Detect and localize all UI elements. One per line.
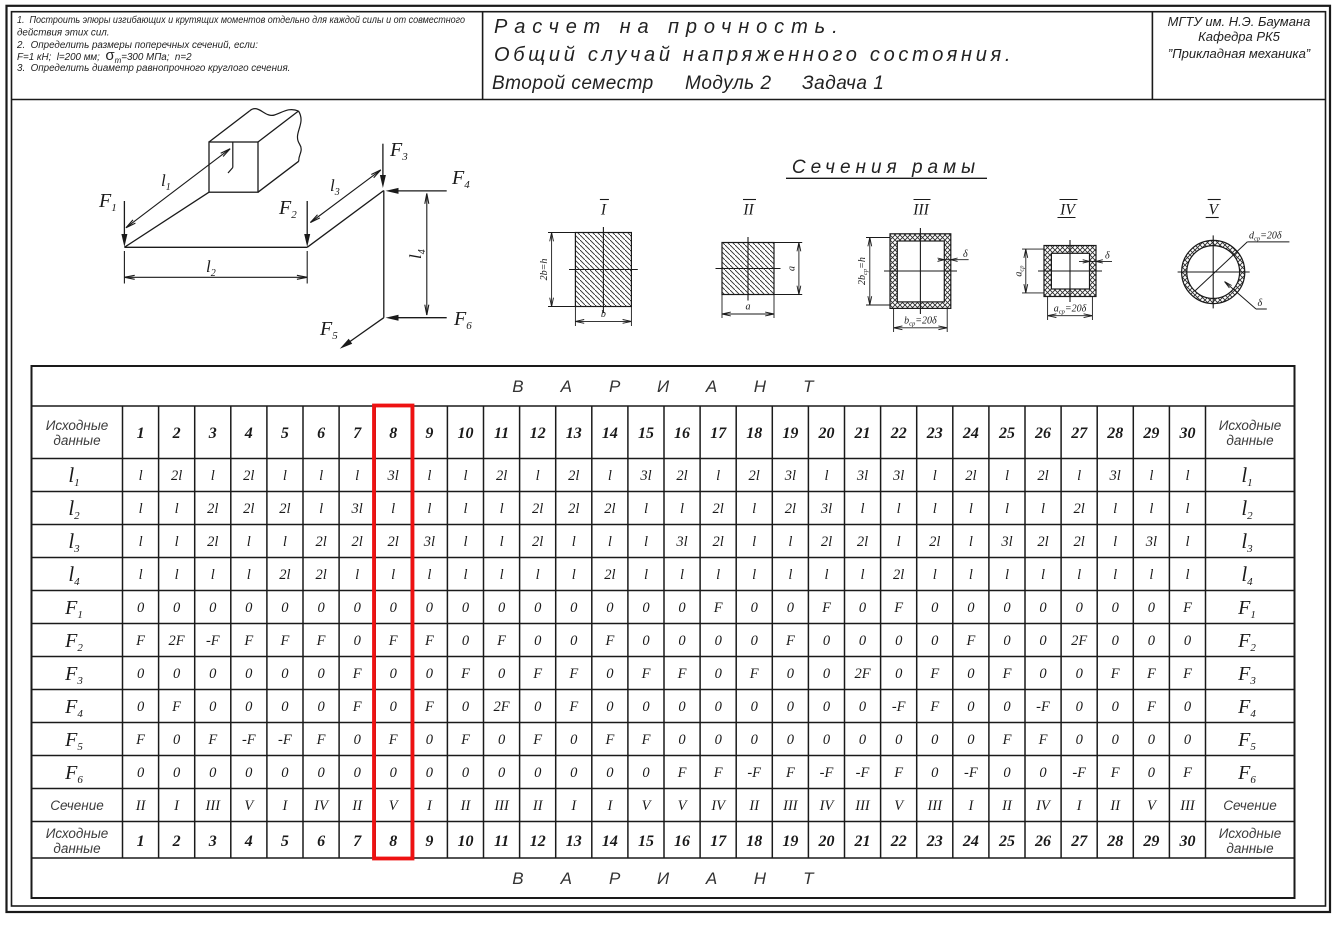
svg-text:20: 20	[818, 833, 835, 850]
svg-text:F: F	[677, 765, 687, 781]
svg-text:6: 6	[317, 425, 325, 442]
svg-text:Исходные: Исходные	[46, 418, 109, 433]
svg-text:В: В	[512, 377, 523, 396]
svg-text:Н: Н	[754, 869, 767, 888]
svg-text:0: 0	[895, 732, 903, 748]
svg-text:0: 0	[354, 765, 362, 781]
svg-text:l: l	[139, 468, 143, 484]
svg-text:Расчет на прочность.: Расчет на прочность.	[494, 16, 845, 38]
svg-text:21: 21	[854, 833, 871, 850]
svg-text:V: V	[642, 798, 653, 814]
svg-text:F3: F3	[1237, 663, 1256, 687]
svg-text:F: F	[135, 633, 145, 649]
svg-text:10: 10	[458, 425, 474, 442]
svg-text:F2: F2	[278, 197, 297, 221]
svg-text:l: l	[536, 567, 540, 583]
svg-text:l3: l3	[1241, 529, 1253, 555]
svg-text:0: 0	[787, 600, 795, 616]
svg-text:δ: δ	[1258, 298, 1263, 309]
svg-text:l: l	[1005, 567, 1009, 583]
svg-text:17: 17	[710, 425, 727, 442]
svg-text:0: 0	[751, 732, 759, 748]
svg-text:F: F	[1002, 732, 1012, 748]
svg-text:0: 0	[281, 600, 289, 616]
svg-text:l: l	[355, 468, 359, 484]
svg-text:l: l	[1077, 468, 1081, 484]
svg-text:0: 0	[642, 699, 650, 715]
svg-text:l: l	[283, 534, 287, 550]
svg-text:F3: F3	[64, 663, 83, 687]
svg-text:-F: -F	[856, 765, 870, 781]
svg-text:данные: данные	[1226, 433, 1273, 448]
svg-text:δ: δ	[1105, 251, 1110, 262]
svg-text:l3: l3	[330, 176, 340, 198]
svg-text:F4: F4	[64, 696, 83, 720]
svg-text:0: 0	[426, 765, 434, 781]
svg-text:0: 0	[823, 699, 831, 715]
svg-text:I: I	[967, 798, 974, 814]
svg-text:l: l	[1041, 567, 1045, 583]
svg-text:27: 27	[1070, 833, 1088, 850]
svg-text:1: 1	[137, 425, 145, 442]
svg-text:F: F	[532, 732, 542, 748]
svg-text:0: 0	[1076, 600, 1084, 616]
svg-text:2. Определить размеры попереч: 2. Определить размеры поперечных сечений…	[16, 40, 258, 51]
svg-text:bср=20δ: bср=20δ	[904, 316, 937, 328]
svg-text:-F: -F	[278, 732, 292, 748]
svg-text:0: 0	[498, 765, 506, 781]
svg-text:b: b	[601, 309, 606, 320]
svg-text:29: 29	[1142, 425, 1159, 442]
svg-text:Сечения рамы: Сечения рамы	[792, 157, 980, 178]
svg-text:0: 0	[1112, 600, 1120, 616]
svg-text:24: 24	[962, 425, 979, 442]
svg-text:3: 3	[208, 425, 217, 442]
svg-text:2l: 2l	[388, 534, 399, 550]
svg-text:Общий случай напряженного сост: Общий случай напряженного состояния.	[494, 44, 1014, 66]
svg-text:0: 0	[426, 600, 434, 616]
svg-text:II: II	[1001, 798, 1013, 814]
svg-text:Исходные: Исходные	[1219, 418, 1282, 433]
svg-text:l: l	[1005, 468, 1009, 484]
svg-text:0: 0	[931, 765, 939, 781]
svg-text:А: А	[560, 377, 572, 396]
svg-text:F: F	[604, 633, 614, 649]
svg-text:l: l	[1113, 534, 1117, 550]
svg-text:F: F	[171, 699, 181, 715]
svg-text:F: F	[1110, 765, 1120, 781]
svg-text:0: 0	[534, 633, 542, 649]
svg-text:0: 0	[137, 699, 145, 715]
svg-text:2l: 2l	[279, 501, 290, 517]
svg-text:IV: IV	[313, 798, 330, 814]
svg-text:2l: 2l	[532, 534, 543, 550]
svg-text:l: l	[644, 534, 648, 550]
svg-text:0: 0	[1184, 633, 1192, 649]
svg-text:12: 12	[530, 425, 546, 442]
svg-text:-F: -F	[1072, 765, 1086, 781]
svg-text:0: 0	[354, 633, 362, 649]
svg-text:l: l	[1041, 501, 1045, 517]
svg-text:4: 4	[244, 425, 253, 442]
svg-text:F: F	[965, 633, 975, 649]
svg-text:IV: IV	[1035, 798, 1052, 814]
svg-text:I: I	[1076, 798, 1083, 814]
svg-text:F: F	[532, 666, 542, 682]
svg-text:F1: F1	[98, 190, 117, 214]
svg-text:I: I	[570, 798, 577, 814]
svg-text:2l: 2l	[713, 501, 724, 517]
svg-text:Сечение: Сечение	[50, 798, 103, 813]
svg-text:I: I	[600, 202, 607, 219]
svg-text:l3: l3	[68, 529, 80, 555]
svg-text:l: l	[969, 567, 973, 583]
svg-text:F: F	[207, 732, 217, 748]
svg-text:0: 0	[1148, 732, 1156, 748]
svg-text:0: 0	[1003, 765, 1011, 781]
svg-text:3: 3	[208, 833, 217, 850]
svg-text:F: F	[1002, 666, 1012, 682]
svg-text:F6: F6	[453, 308, 472, 332]
svg-text:3l: 3l	[351, 501, 363, 517]
svg-text:0: 0	[570, 732, 578, 748]
svg-text:0: 0	[534, 699, 542, 715]
svg-text:0: 0	[1076, 666, 1084, 682]
svg-text:0: 0	[209, 765, 217, 781]
svg-text:F2: F2	[1237, 630, 1256, 654]
svg-text:0: 0	[642, 765, 650, 781]
svg-text:l: l	[788, 567, 792, 583]
svg-text:2l: 2l	[568, 468, 579, 484]
svg-text:25: 25	[998, 425, 1015, 442]
svg-text:Исходные: Исходные	[1219, 826, 1282, 841]
svg-text:13: 13	[566, 425, 582, 442]
svg-text:l4: l4	[406, 249, 428, 259]
svg-text:l: l	[175, 501, 179, 517]
svg-text:2l: 2l	[243, 468, 254, 484]
svg-text:2b=h: 2b=h	[539, 259, 550, 281]
svg-text:l1: l1	[1241, 463, 1252, 489]
svg-text:0: 0	[1148, 633, 1156, 649]
svg-text:l1: l1	[68, 463, 79, 489]
svg-text:Модуль 2: Модуль 2	[685, 73, 772, 94]
svg-text:0: 0	[787, 732, 795, 748]
svg-text:15: 15	[638, 425, 654, 442]
svg-text:8: 8	[389, 425, 397, 442]
svg-text:l: l	[860, 567, 864, 583]
svg-text:1: 1	[137, 833, 145, 850]
svg-text:aср=20δ: aср=20δ	[1054, 304, 1087, 316]
svg-text:-F: -F	[892, 699, 906, 715]
svg-text:2l: 2l	[171, 468, 182, 484]
svg-text:F: F	[388, 732, 398, 748]
svg-text:0: 0	[1003, 699, 1011, 715]
svg-text:2l: 2l	[243, 501, 254, 517]
svg-text:0: 0	[1076, 732, 1084, 748]
svg-text:-F: -F	[242, 732, 256, 748]
svg-text:0: 0	[678, 633, 686, 649]
svg-text:F: F	[460, 732, 470, 748]
svg-text:l: l	[824, 567, 828, 583]
svg-text:I: I	[281, 798, 288, 814]
svg-text:9: 9	[425, 425, 433, 442]
svg-text:0: 0	[462, 633, 470, 649]
svg-text:В: В	[512, 869, 523, 888]
svg-text:26: 26	[1034, 425, 1051, 442]
svg-text:F5: F5	[319, 318, 338, 342]
svg-text:0: 0	[606, 765, 614, 781]
svg-text:0: 0	[895, 633, 903, 649]
svg-text:0: 0	[931, 600, 939, 616]
svg-text:0: 0	[245, 666, 253, 682]
svg-text:F2: F2	[64, 630, 83, 654]
svg-text:F: F	[893, 600, 903, 616]
svg-text:l: l	[319, 468, 323, 484]
svg-text:l: l	[500, 534, 504, 550]
svg-text:Исходные: Исходные	[46, 826, 109, 841]
svg-text:0: 0	[895, 666, 903, 682]
svg-text:0: 0	[1003, 600, 1011, 616]
svg-text:F: F	[460, 666, 470, 682]
svg-text:0: 0	[823, 666, 831, 682]
svg-text:28: 28	[1106, 833, 1123, 850]
svg-text:F4: F4	[1237, 696, 1256, 720]
svg-text:0: 0	[390, 600, 398, 616]
svg-text:А: А	[560, 869, 572, 888]
svg-text:0: 0	[173, 732, 181, 748]
svg-text:16: 16	[674, 425, 690, 442]
svg-text:0: 0	[678, 600, 686, 616]
svg-text:III: III	[782, 798, 799, 814]
svg-text:МГТУ им. Н.Э. Баумана: МГТУ им. Н.Э. Баумана	[1168, 14, 1311, 29]
svg-text:F: F	[135, 732, 145, 748]
svg-text:0: 0	[967, 600, 975, 616]
svg-text:23: 23	[926, 833, 943, 850]
svg-text:18: 18	[746, 425, 762, 442]
svg-text:l: l	[608, 468, 612, 484]
svg-text:5: 5	[281, 833, 289, 850]
svg-text:0: 0	[173, 765, 181, 781]
svg-text:3l: 3l	[820, 501, 832, 517]
svg-text:l: l	[680, 501, 684, 517]
svg-text:2l: 2l	[315, 534, 326, 550]
svg-text:l: l	[1185, 534, 1189, 550]
svg-text:2l: 2l	[315, 567, 326, 583]
svg-text:l: l	[969, 534, 973, 550]
svg-text:2l: 2l	[749, 468, 760, 484]
svg-text:Задача 1: Задача 1	[802, 73, 884, 94]
svg-text:III: III	[1179, 798, 1196, 814]
svg-text:F: F	[893, 765, 903, 781]
svg-text:F: F	[243, 633, 253, 649]
svg-text:F: F	[279, 633, 289, 649]
svg-text:a: a	[746, 302, 751, 313]
svg-text:l: l	[860, 501, 864, 517]
svg-text:2F: 2F	[494, 699, 510, 715]
svg-text:F: F	[821, 600, 831, 616]
svg-text:0: 0	[173, 666, 181, 682]
svg-text:l4: l4	[68, 562, 80, 588]
svg-text:0: 0	[462, 699, 470, 715]
svg-text:F6: F6	[1237, 762, 1256, 786]
svg-text:l: l	[391, 567, 395, 583]
svg-text:0: 0	[1039, 633, 1047, 649]
svg-text:4: 4	[244, 833, 253, 850]
svg-text:l: l	[752, 534, 756, 550]
svg-text:15: 15	[638, 833, 654, 850]
svg-text:0: 0	[354, 600, 362, 616]
svg-text:I: I	[606, 798, 613, 814]
svg-text:l: l	[463, 501, 467, 517]
svg-text:-F: -F	[747, 765, 761, 781]
svg-text:l: l	[427, 468, 431, 484]
svg-text:-F: -F	[820, 765, 834, 781]
svg-text:А: А	[705, 869, 717, 888]
svg-text:2l: 2l	[857, 534, 868, 550]
svg-text:l: l	[463, 567, 467, 583]
svg-text:0: 0	[715, 732, 723, 748]
svg-text:F1: F1	[1237, 597, 1256, 621]
svg-text:II: II	[748, 798, 760, 814]
svg-text:l: l	[933, 501, 937, 517]
svg-text:I: I	[426, 798, 433, 814]
svg-text:2l: 2l	[604, 501, 615, 517]
svg-text:l: l	[500, 567, 504, 583]
svg-text:l: l	[139, 501, 143, 517]
svg-text:0: 0	[245, 600, 253, 616]
svg-text:данные: данные	[53, 841, 100, 856]
svg-text:1. Построить эпюры изгибающих: 1. Построить эпюры изгибающих и крутящих…	[17, 15, 465, 26]
svg-text:0: 0	[173, 600, 181, 616]
svg-text:3l: 3l	[892, 468, 904, 484]
svg-text:l: l	[1005, 501, 1009, 517]
svg-text:II: II	[532, 798, 544, 814]
svg-text:Н: Н	[754, 377, 767, 396]
svg-text:0: 0	[715, 633, 723, 649]
svg-text:30: 30	[1179, 425, 1196, 442]
svg-text:25: 25	[998, 833, 1015, 850]
svg-text:l: l	[1149, 567, 1153, 583]
svg-text:2l: 2l	[965, 468, 976, 484]
svg-text:данные: данные	[53, 433, 100, 448]
svg-text:0: 0	[967, 666, 975, 682]
svg-text:0: 0	[1003, 633, 1011, 649]
svg-text:F: F	[641, 732, 651, 748]
svg-text:0: 0	[787, 699, 795, 715]
svg-text:2l: 2l	[207, 534, 218, 550]
svg-text:0: 0	[606, 699, 614, 715]
svg-text:F: F	[1182, 765, 1192, 781]
svg-text:0: 0	[498, 600, 506, 616]
svg-text:II: II	[1109, 798, 1121, 814]
svg-text:l1: l1	[161, 171, 171, 193]
svg-text:III: III	[493, 798, 510, 814]
svg-text:0: 0	[1039, 666, 1047, 682]
svg-text:данные: данные	[1226, 841, 1273, 856]
svg-text:V: V	[389, 798, 400, 814]
svg-text:действия этих сил.: действия этих сил.	[17, 28, 110, 39]
svg-text:23: 23	[926, 425, 943, 442]
svg-text:V: V	[1147, 798, 1158, 814]
svg-text:А: А	[705, 377, 717, 396]
svg-text:V: V	[244, 798, 255, 814]
svg-text:F: F	[604, 732, 614, 748]
svg-text:F: F	[785, 765, 795, 781]
svg-text:20: 20	[818, 425, 835, 442]
svg-text:l: l	[824, 468, 828, 484]
svg-text:3l: 3l	[1145, 534, 1157, 550]
svg-text:l: l	[897, 501, 901, 517]
svg-text:l: l	[716, 468, 720, 484]
svg-text:19: 19	[782, 425, 798, 442]
svg-text:II: II	[351, 798, 363, 814]
svg-text:2l: 2l	[352, 534, 363, 550]
svg-text:3l: 3l	[1000, 534, 1012, 550]
svg-text:0: 0	[498, 666, 506, 682]
svg-text:l: l	[680, 567, 684, 583]
svg-text:l: l	[1149, 501, 1153, 517]
svg-text:III: III	[927, 798, 944, 814]
svg-text:l: l	[355, 567, 359, 583]
svg-text:3. Определить диаметр равнопр: 3. Определить диаметр равнопрочного круг…	[17, 63, 290, 74]
svg-text:0: 0	[823, 732, 831, 748]
svg-text:13: 13	[566, 833, 582, 850]
svg-text:2l: 2l	[279, 567, 290, 583]
svg-text:0: 0	[354, 732, 362, 748]
svg-text:17: 17	[710, 833, 727, 850]
svg-text:l: l	[211, 468, 215, 484]
svg-text:l: l	[139, 567, 143, 583]
svg-text:F: F	[929, 699, 939, 715]
svg-text:F: F	[568, 699, 578, 715]
svg-text:F: F	[1182, 600, 1192, 616]
svg-text:F: F	[1146, 666, 1156, 682]
svg-text:И: И	[657, 377, 670, 396]
svg-text:2l: 2l	[1037, 468, 1048, 484]
svg-text:F3: F3	[389, 139, 408, 163]
svg-text:F: F	[424, 699, 434, 715]
svg-text:l: l	[319, 501, 323, 517]
svg-text:Второй семестр: Второй семестр	[492, 73, 654, 94]
svg-text:l: l	[644, 501, 648, 517]
svg-text:l4: l4	[1241, 562, 1253, 588]
svg-text:0: 0	[787, 666, 795, 682]
svg-text:2l: 2l	[929, 534, 940, 550]
svg-text:F: F	[929, 666, 939, 682]
svg-text:3l: 3l	[387, 468, 399, 484]
svg-text:2l: 2l	[1037, 534, 1048, 550]
svg-text:6: 6	[317, 833, 325, 850]
svg-text:3l: 3l	[1109, 468, 1121, 484]
svg-text:l: l	[752, 567, 756, 583]
svg-text:F: F	[352, 699, 362, 715]
svg-text:26: 26	[1034, 833, 1051, 850]
svg-text:0: 0	[642, 633, 650, 649]
svg-text:0: 0	[1148, 600, 1156, 616]
svg-text:7: 7	[353, 425, 362, 442]
svg-text:V: V	[678, 798, 689, 814]
svg-text:F: F	[1146, 699, 1156, 715]
svg-text:21: 21	[854, 425, 871, 442]
svg-text:0: 0	[390, 699, 398, 715]
svg-text:l: l	[500, 501, 504, 517]
svg-text:F4: F4	[451, 167, 470, 191]
svg-text:29: 29	[1142, 833, 1159, 850]
svg-text:0: 0	[137, 765, 145, 781]
svg-text:l: l	[1113, 501, 1117, 517]
svg-text:l2: l2	[206, 257, 216, 279]
svg-text:0: 0	[498, 732, 506, 748]
